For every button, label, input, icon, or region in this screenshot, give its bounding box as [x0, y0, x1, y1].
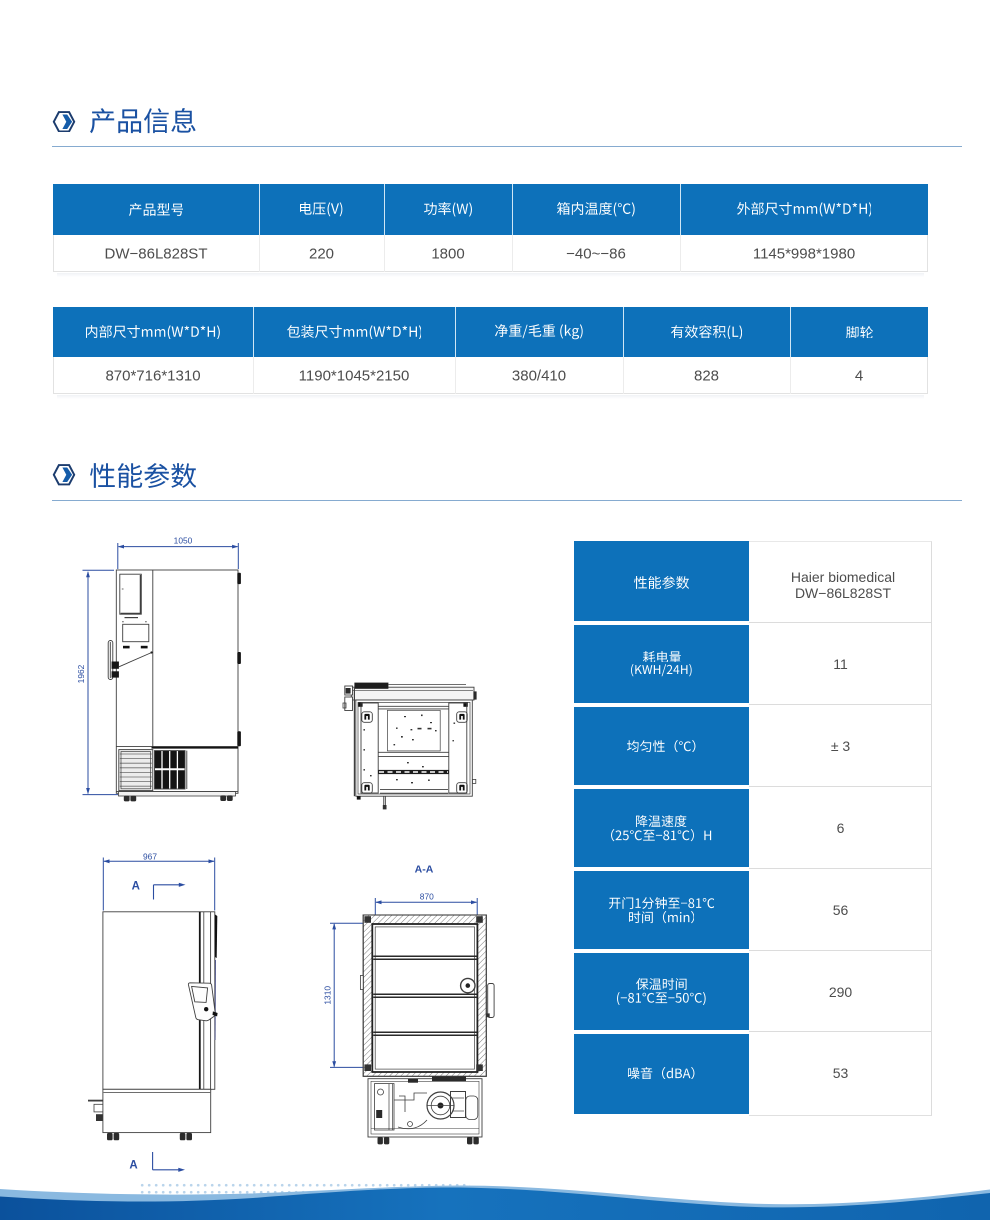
svg-text:870: 870	[420, 892, 434, 902]
svg-text:1310: 1310	[322, 986, 332, 1005]
svg-text:A: A	[132, 881, 140, 893]
svg-text:1050: 1050	[174, 536, 193, 546]
svg-text:A-A: A-A	[415, 864, 434, 876]
svg-text:967: 967	[143, 852, 157, 862]
svg-text:1962: 1962	[76, 664, 86, 683]
svg-text:A: A	[129, 1160, 137, 1172]
